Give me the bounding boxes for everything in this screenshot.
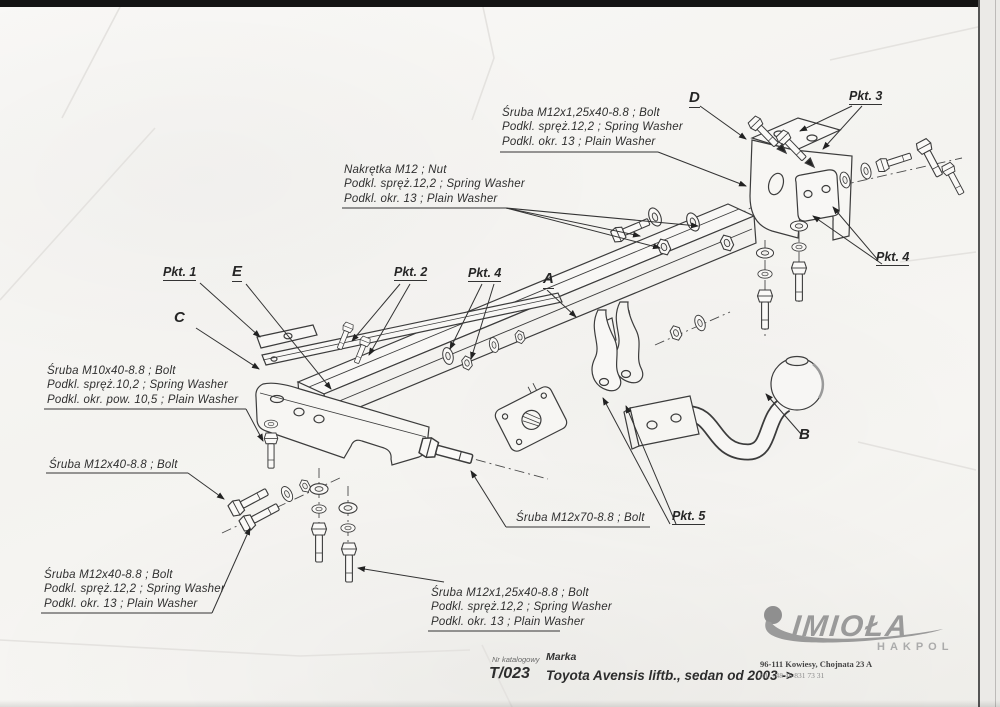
label-bottom-left-spec: Śruba M12x40-8.8 ; Bolt Podkl. spręż.12,… [44, 568, 225, 611]
part-letter-a: A [543, 270, 554, 289]
crossbar-beam [298, 204, 756, 421]
scan-edge-bottom [0, 700, 1000, 707]
spec-line: Podkl. okr. 13 ; Plain Washer [502, 135, 683, 149]
label-m12x40-bolt: Śruba M12x40-8.8 ; Bolt [49, 458, 178, 472]
towball [624, 357, 823, 453]
part-letter-b: B [799, 426, 810, 443]
point-ref-pkt1: Pkt. 1 [163, 265, 196, 281]
label-m12x70-bolt: Śruba M12x70-8.8 ; Bolt [516, 511, 645, 525]
manufacturer-address: 96-111 Kowiesy, Chojnata 23 A [760, 659, 872, 669]
label-nut-spec: Nakrętka M12 ; Nut Podkl. spręż.12,2 ; S… [344, 163, 525, 206]
spec-line: Podkl. spręż.12,2 ; Spring Washer [502, 120, 683, 134]
spec-line: Śruba M12x70-8.8 ; Bolt [516, 511, 645, 525]
spec-line: Podkl. spręż.12,2 ; Spring Washer [431, 600, 612, 614]
spec-line: Śruba M12x1,25x40-8.8 ; Bolt [502, 106, 683, 120]
label-m10-bolt-spec: Śruba M10x40-8.8 ; Bolt Podkl. spręż.10,… [47, 364, 238, 407]
spec-line: Podkl. okr. 13 ; Plain Washer [344, 192, 525, 206]
spec-line: Śruba M12x1,25x40-8.8 ; Bolt [431, 586, 612, 600]
vehicle-model: Toyota Avensis liftb., sedan od 2003 -> [546, 668, 794, 683]
point-ref-pkt2: Pkt. 2 [394, 265, 427, 281]
socket-plate [489, 377, 569, 453]
spec-line: Podkl. spręż.12,2 ; Spring Washer [44, 582, 225, 596]
point-ref-pkt5: Pkt. 5 [672, 509, 705, 525]
part-letter-d: D [689, 89, 700, 108]
catalog-number-label: Nr katalogowy [492, 655, 540, 664]
logo-sub: HAKPOL [877, 641, 953, 653]
spec-line: Podkl. spręż.12,2 ; Spring Washer [344, 177, 525, 191]
manufacturer-phone: tel. +48 46 831 73 31 [760, 671, 824, 680]
point-ref-pkt3: Pkt. 3 [849, 89, 882, 105]
scan-edge-top [0, 0, 1000, 7]
logo-name: IMIOŁA [790, 610, 910, 643]
brand-label: Marka [546, 651, 576, 663]
catalog-number: T/023 [489, 665, 530, 683]
spec-line: Podkl. okr. 13 ; Plain Washer [44, 597, 225, 611]
spec-line: Śruba M12x40-8.8 ; Bolt [49, 458, 178, 472]
point-ref-pkt4-left: Pkt. 4 [468, 266, 501, 282]
spec-line: Podkl. spręż.10,2 ; Spring Washer [47, 378, 238, 392]
spec-line: Nakrętka M12 ; Nut [344, 163, 525, 177]
point-ref-pkt4-right: Pkt. 4 [876, 250, 909, 266]
part-letter-c: C [174, 309, 185, 326]
part-letter-e: E [232, 263, 242, 282]
scan-edge-right-line [995, 0, 996, 707]
scan-edge-right [978, 0, 1000, 707]
spec-line: Śruba M12x40-8.8 ; Bolt [44, 568, 225, 582]
spec-line: Podkl. okr. 13 ; Plain Washer [431, 615, 612, 629]
brand-logo: IMIOŁA HAKPOL [764, 606, 953, 653]
spec-line: Śruba M10x40-8.8 ; Bolt [47, 364, 238, 378]
label-top-bolt-spec: Śruba M12x1,25x40-8.8 ; Bolt Podkl. sprę… [502, 106, 683, 149]
label-bottom-mid-spec: Śruba M12x1,25x40-8.8 ; Bolt Podkl. sprę… [431, 586, 612, 629]
spec-line: Podkl. okr. pow. 10,5 ; Plain Washer [47, 393, 238, 407]
hanger-bracket [592, 302, 643, 391]
